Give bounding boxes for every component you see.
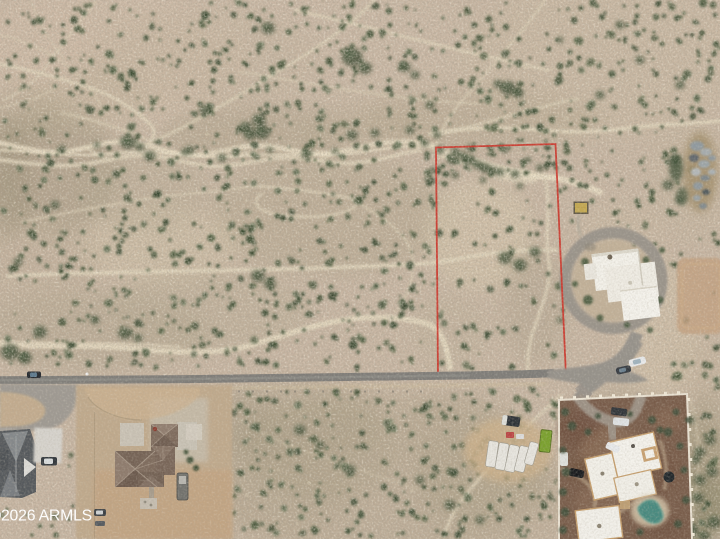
svg-text:©2026 ARMLS: ©2026 ARMLS: [0, 508, 92, 525]
